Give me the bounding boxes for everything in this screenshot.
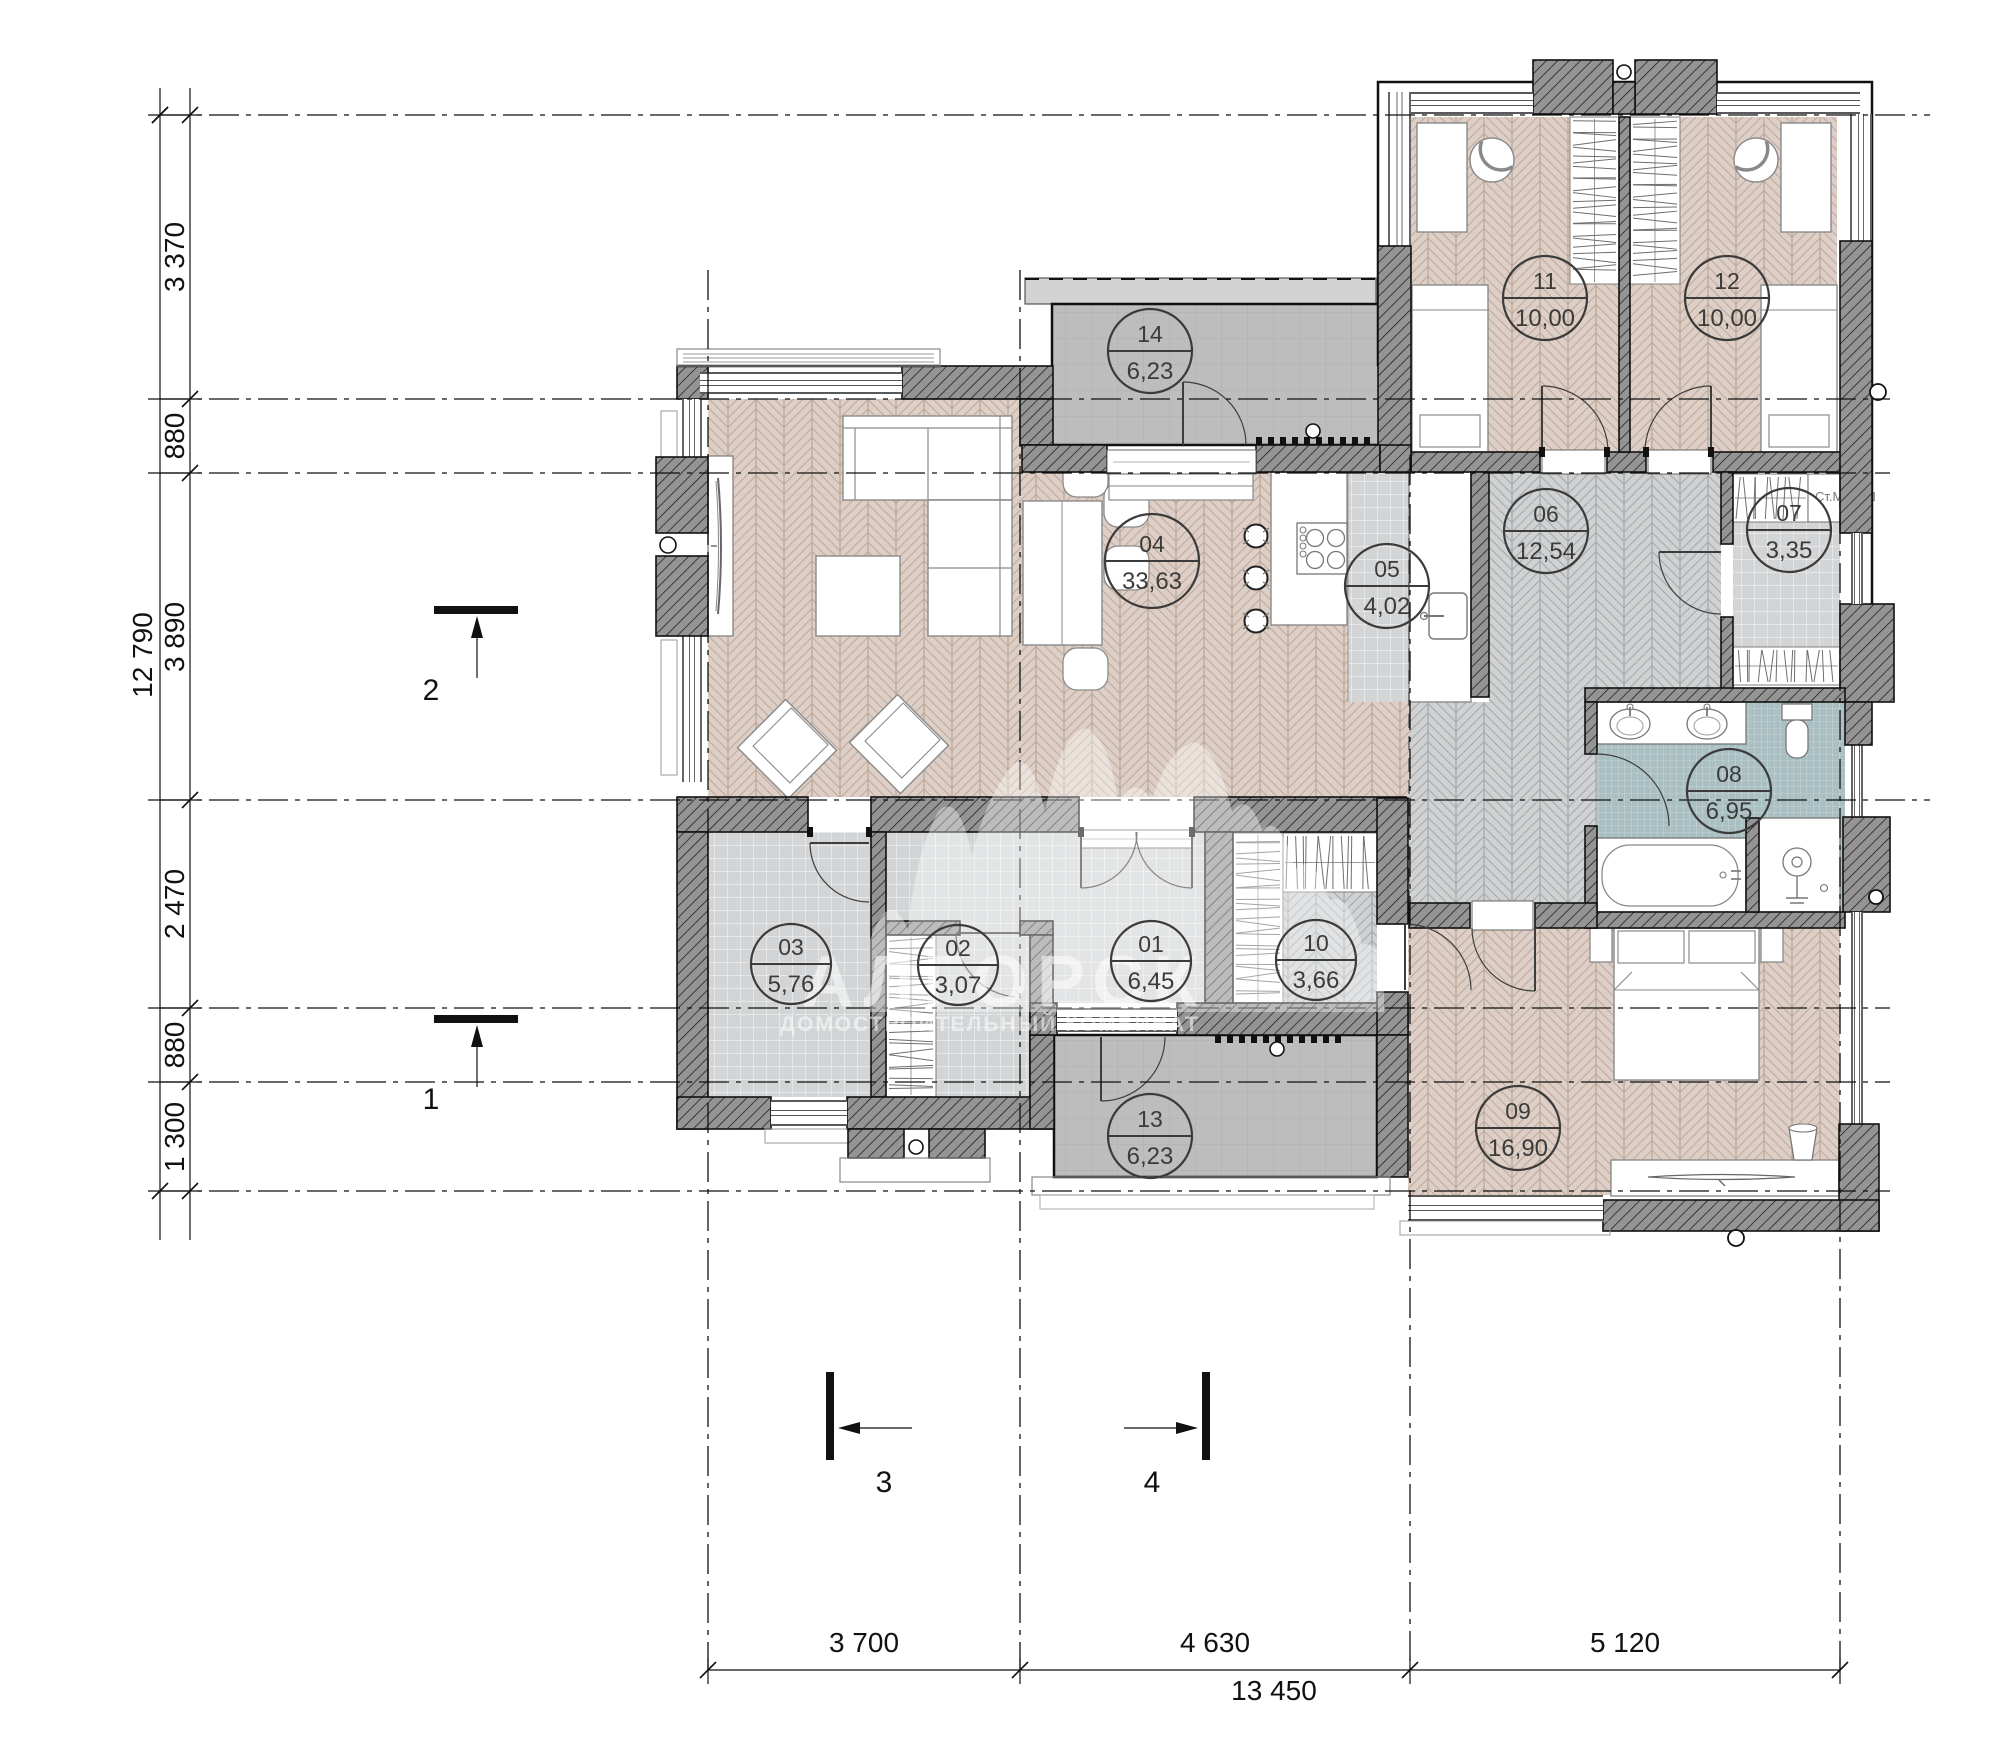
svg-text:07: 07	[1776, 500, 1802, 526]
svg-text:05: 05	[1374, 556, 1400, 582]
svg-text:16,90: 16,90	[1488, 1135, 1548, 1162]
svg-text:01: 01	[1138, 931, 1164, 957]
svg-text:5,76: 5,76	[768, 971, 815, 998]
svg-text:14: 14	[1137, 321, 1163, 347]
svg-text:02: 02	[945, 935, 971, 961]
svg-text:3 890: 3 890	[159, 602, 190, 672]
svg-text:3,66: 3,66	[1293, 967, 1340, 994]
svg-text:1: 1	[423, 1083, 440, 1116]
svg-text:08: 08	[1716, 761, 1742, 787]
svg-text:6,23: 6,23	[1127, 1143, 1174, 1170]
svg-text:6,23: 6,23	[1127, 358, 1174, 385]
svg-text:09: 09	[1505, 1098, 1531, 1124]
svg-text:880: 880	[159, 1022, 190, 1069]
svg-text:3,35: 3,35	[1766, 537, 1813, 564]
svg-text:11: 11	[1533, 268, 1557, 294]
svg-text:1 300: 1 300	[159, 1102, 190, 1172]
svg-text:ДОМОСТРОИТЕЛЬНЫЙ КОМБИНАТ: ДОМОСТРОИТЕЛЬНЫЙ КОМБИНАТ	[780, 1012, 1200, 1036]
svg-text:10: 10	[1303, 930, 1329, 956]
svg-text:3,07: 3,07	[935, 972, 982, 999]
svg-text:6,45: 6,45	[1128, 968, 1175, 995]
svg-text:4: 4	[1144, 1466, 1161, 1499]
svg-text:6,95: 6,95	[1706, 798, 1753, 825]
svg-text:5 120: 5 120	[1590, 1627, 1660, 1658]
svg-text:4,02: 4,02	[1364, 593, 1411, 620]
svg-text:12: 12	[1714, 268, 1740, 294]
svg-text:2 470: 2 470	[159, 869, 190, 939]
svg-text:12,54: 12,54	[1516, 538, 1576, 565]
svg-text:10,00: 10,00	[1515, 305, 1575, 332]
svg-text:880: 880	[159, 413, 190, 460]
svg-text:3 700: 3 700	[829, 1627, 899, 1658]
svg-text:12 790: 12 790	[127, 612, 158, 698]
svg-text:10,00: 10,00	[1697, 305, 1757, 332]
svg-text:2: 2	[423, 674, 440, 707]
svg-text:3 370: 3 370	[159, 222, 190, 292]
svg-text:06: 06	[1533, 501, 1559, 527]
svg-text:13: 13	[1137, 1106, 1163, 1132]
svg-text:03: 03	[778, 934, 804, 960]
svg-text:13 450: 13 450	[1231, 1675, 1317, 1706]
svg-text:04: 04	[1139, 531, 1165, 557]
svg-text:3: 3	[876, 1466, 893, 1499]
svg-text:33,63: 33,63	[1122, 568, 1182, 595]
svg-text:4 630: 4 630	[1180, 1627, 1250, 1658]
